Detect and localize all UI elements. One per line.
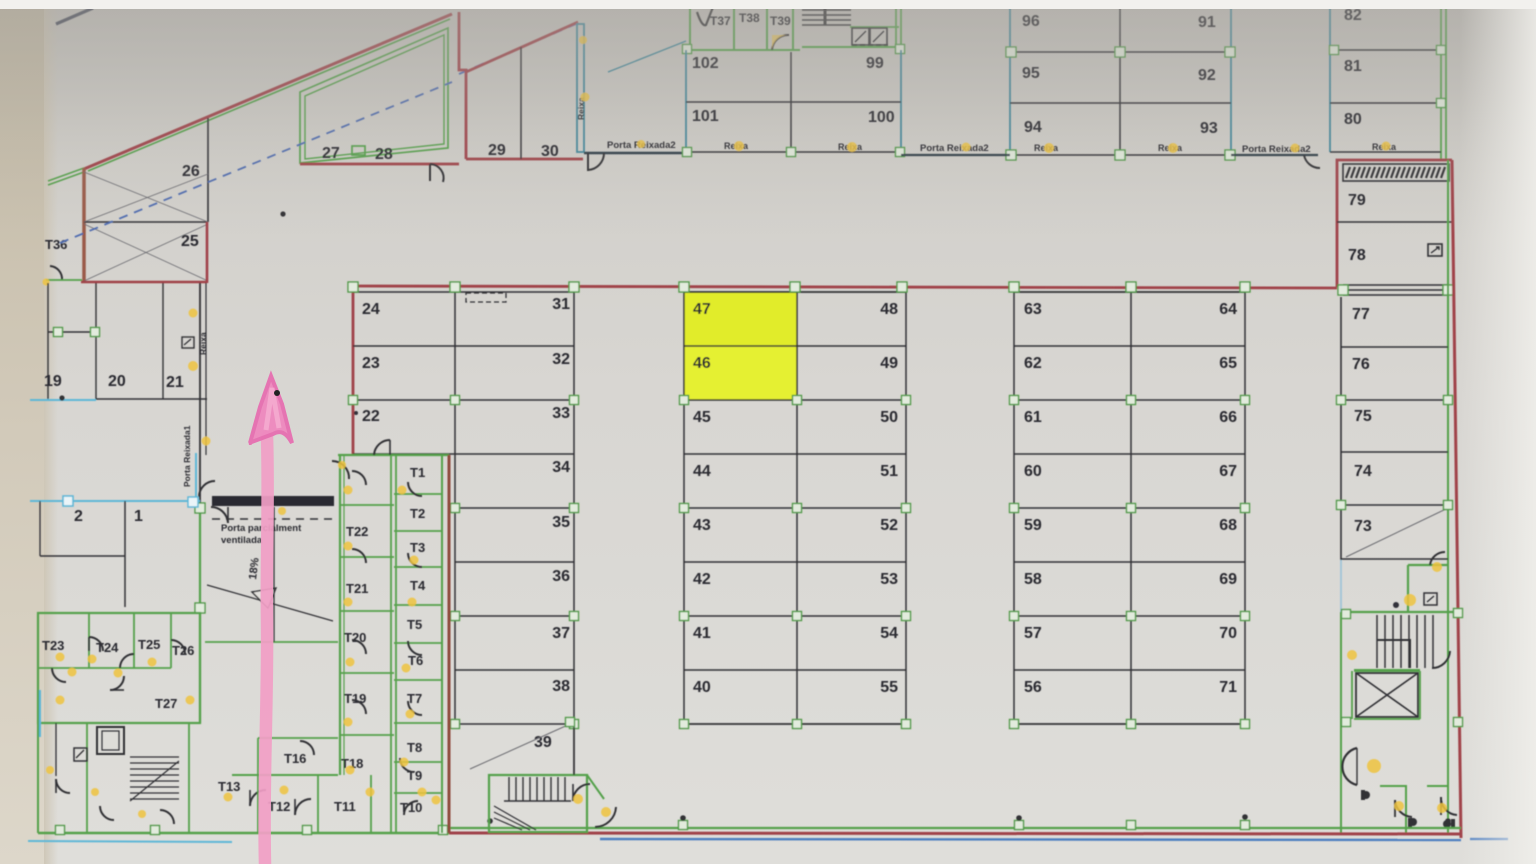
svg-text:20: 20: [108, 373, 126, 390]
svg-text:68: 68: [1219, 517, 1237, 534]
svg-text:23: 23: [362, 355, 380, 372]
svg-text:1: 1: [134, 508, 143, 525]
svg-text:59: 59: [1024, 517, 1042, 534]
svg-text:43: 43: [693, 517, 711, 534]
svg-text:36: 36: [552, 568, 570, 585]
svg-text:76: 76: [1352, 356, 1370, 373]
svg-text:T7: T7: [407, 691, 422, 706]
svg-text:34: 34: [552, 459, 570, 476]
svg-text:19: 19: [44, 373, 62, 390]
svg-text:66: 66: [1219, 409, 1237, 426]
svg-text:T21: T21: [346, 581, 368, 596]
svg-text:42: 42: [693, 571, 711, 588]
svg-text:60: 60: [1024, 463, 1042, 480]
svg-text:47: 47: [693, 301, 711, 318]
svg-text:71: 71: [1219, 679, 1237, 696]
svg-text:49: 49: [880, 355, 898, 372]
svg-text:T25: T25: [138, 637, 160, 652]
svg-text:63: 63: [1024, 301, 1042, 318]
svg-text:77: 77: [1352, 306, 1370, 323]
svg-text:37: 37: [552, 625, 570, 642]
svg-text:61: 61: [1024, 409, 1042, 426]
svg-text:T2: T2: [410, 506, 425, 521]
svg-text:T20: T20: [344, 630, 366, 645]
svg-text:58: 58: [1024, 571, 1042, 588]
svg-text:21: 21: [166, 374, 184, 391]
svg-text:33: 33: [552, 405, 570, 422]
svg-text:22: 22: [362, 408, 380, 425]
svg-text:78: 78: [1348, 247, 1366, 264]
svg-text:74: 74: [1354, 463, 1372, 480]
svg-text:75: 75: [1354, 408, 1372, 425]
svg-text:T5: T5: [407, 617, 422, 632]
svg-text:T22: T22: [346, 524, 368, 539]
svg-text:T27: T27: [155, 696, 177, 711]
svg-text:56: 56: [1024, 679, 1042, 696]
svg-text:32: 32: [552, 351, 570, 368]
svg-text:53: 53: [880, 571, 898, 588]
svg-text:T1: T1: [410, 465, 425, 480]
svg-text:38: 38: [552, 678, 570, 695]
svg-text:52: 52: [880, 517, 898, 534]
svg-text:ventilada: ventilada: [221, 535, 263, 546]
svg-text:40: 40: [693, 679, 711, 696]
svg-text:T13: T13: [218, 779, 240, 794]
svg-text:T12: T12: [268, 799, 290, 814]
svg-text:2: 2: [74, 508, 83, 525]
svg-text:Reixa: Reixa: [198, 332, 208, 355]
svg-text:51: 51: [880, 463, 898, 480]
svg-text:T4: T4: [410, 578, 426, 593]
svg-text:45: 45: [693, 409, 711, 426]
svg-text:46: 46: [693, 355, 711, 372]
svg-text:41: 41: [693, 625, 711, 642]
svg-text:54: 54: [880, 625, 898, 642]
svg-text:55: 55: [880, 679, 898, 696]
svg-text:Porta Reixada1: Porta Reixada1: [182, 425, 192, 487]
svg-text:T8: T8: [407, 740, 422, 755]
svg-text:T3: T3: [410, 540, 425, 555]
svg-text:64: 64: [1219, 301, 1237, 318]
svg-text:70: 70: [1219, 625, 1237, 642]
svg-text:67: 67: [1219, 463, 1237, 480]
svg-text:69: 69: [1219, 571, 1237, 588]
svg-text:T16: T16: [284, 751, 306, 766]
svg-text:T19: T19: [344, 691, 366, 706]
svg-text:44: 44: [693, 463, 711, 480]
svg-text:24: 24: [362, 301, 380, 318]
svg-text:T36: T36: [45, 237, 67, 252]
svg-text:62: 62: [1024, 355, 1042, 372]
svg-text:35: 35: [552, 514, 570, 531]
svg-text:73: 73: [1354, 518, 1372, 535]
svg-text:65: 65: [1219, 355, 1237, 372]
svg-text:50: 50: [880, 409, 898, 426]
svg-text:57: 57: [1024, 625, 1042, 642]
svg-text:31: 31: [552, 296, 570, 313]
svg-text:T11: T11: [334, 799, 356, 814]
svg-text:48: 48: [880, 301, 898, 318]
svg-text:T23: T23: [42, 638, 64, 653]
